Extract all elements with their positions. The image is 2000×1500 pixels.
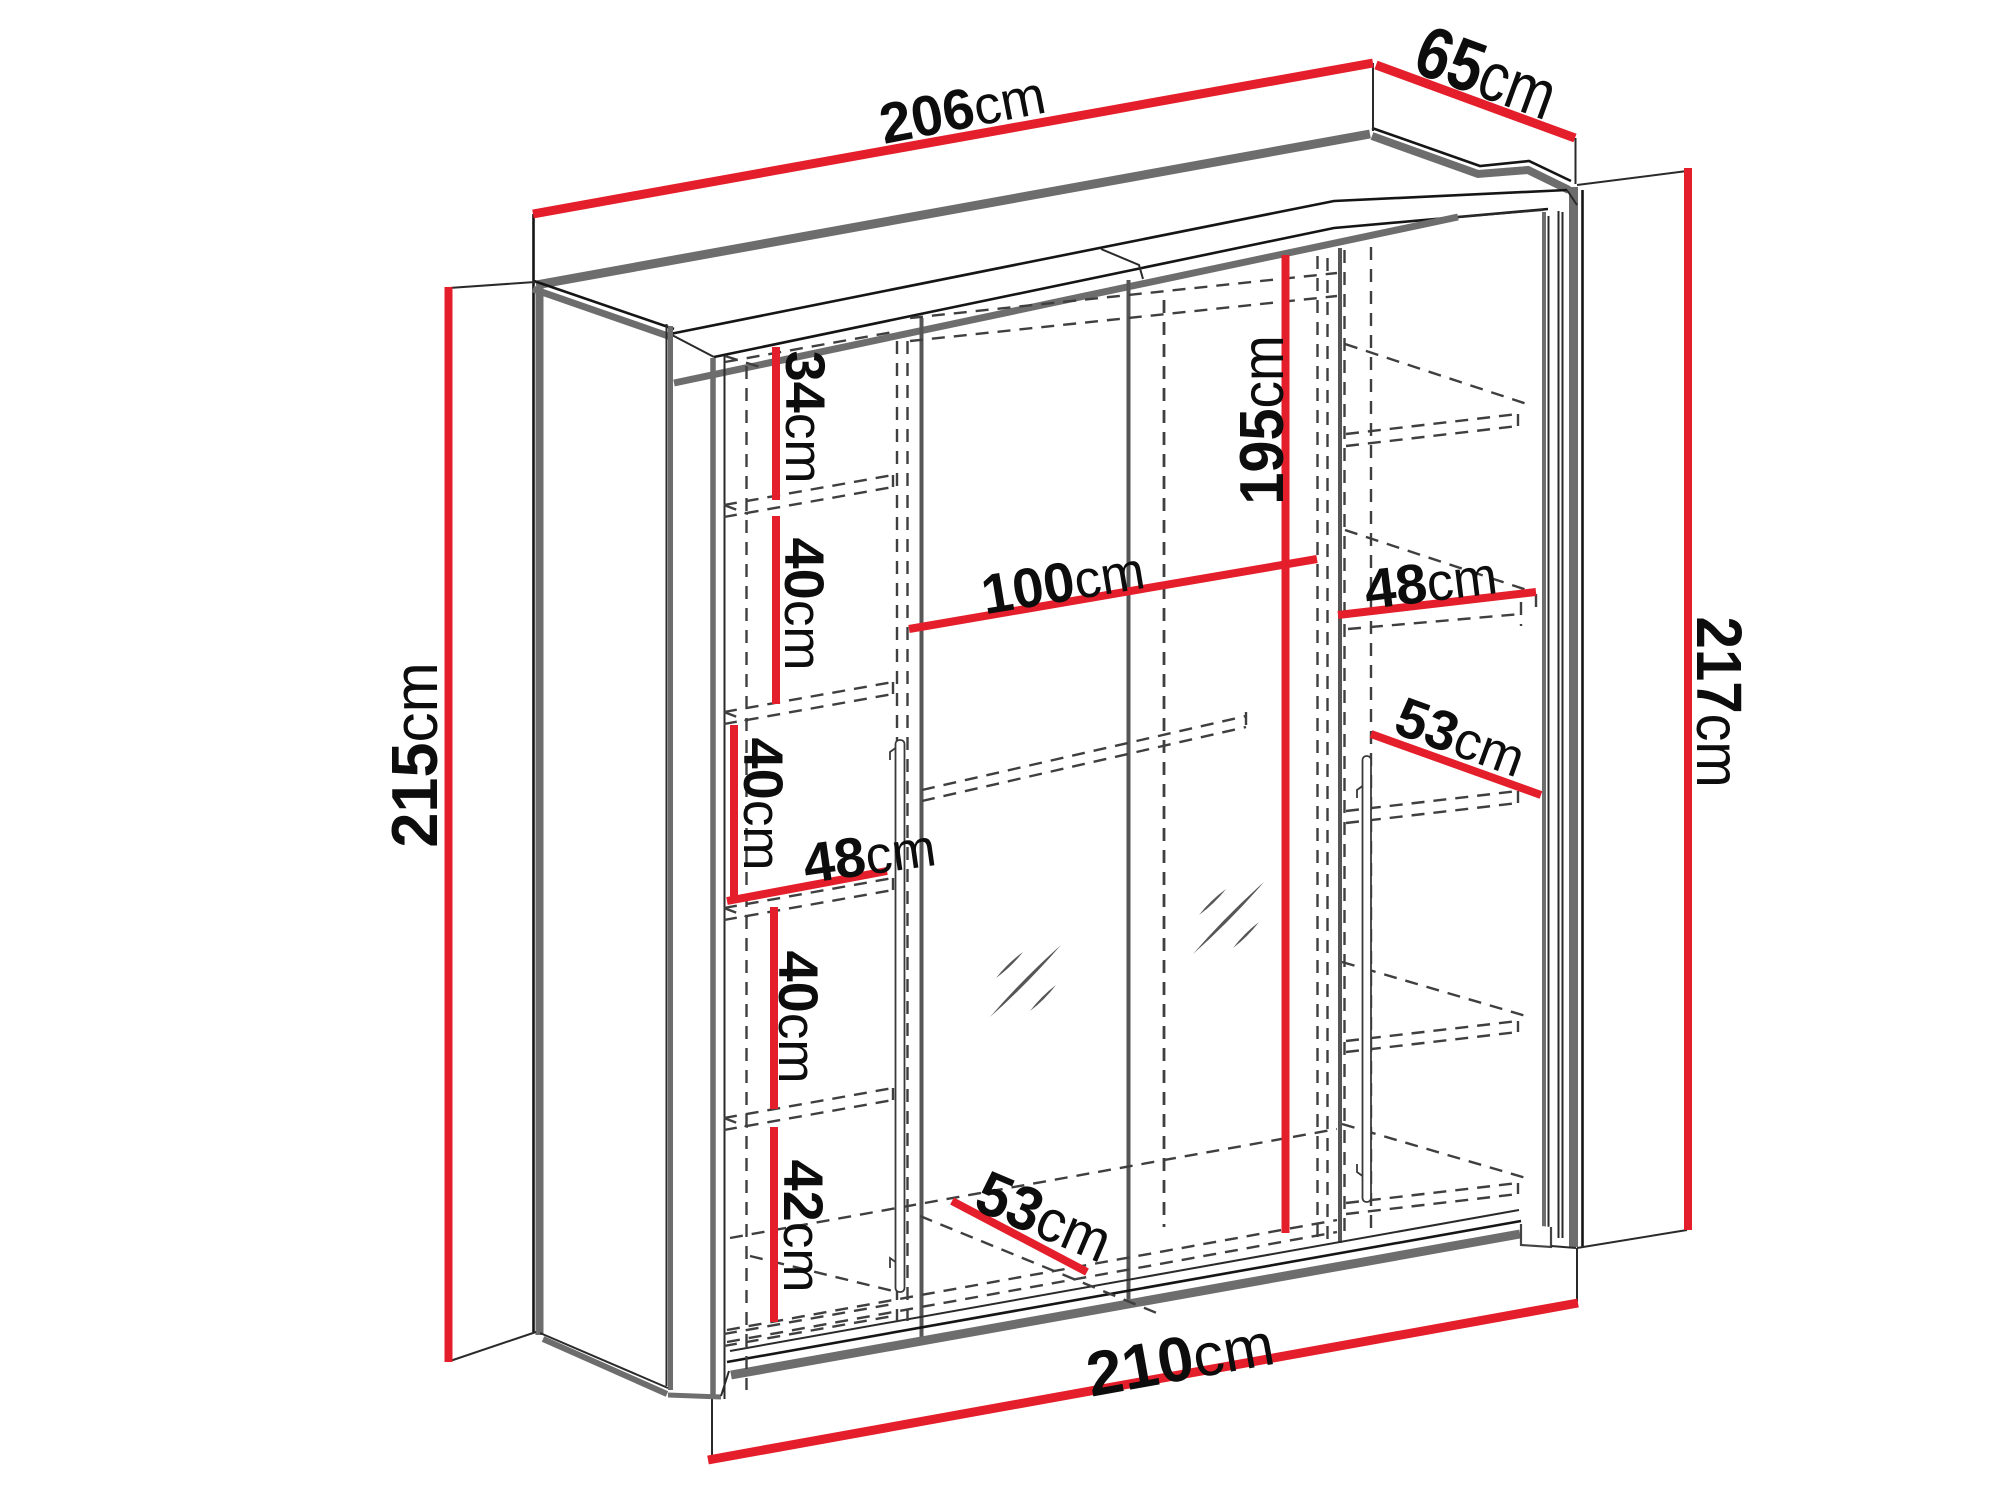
svg-text:217cm: 217cm <box>1683 616 1754 787</box>
svg-text:40cm: 40cm <box>773 538 836 671</box>
svg-text:195cm: 195cm <box>1227 335 1296 504</box>
svg-text:42cm: 42cm <box>772 1160 835 1293</box>
svg-text:215cm: 215cm <box>378 662 451 847</box>
svg-text:40cm: 40cm <box>732 738 795 871</box>
svg-text:34cm: 34cm <box>774 351 837 484</box>
svg-text:40cm: 40cm <box>767 951 830 1084</box>
